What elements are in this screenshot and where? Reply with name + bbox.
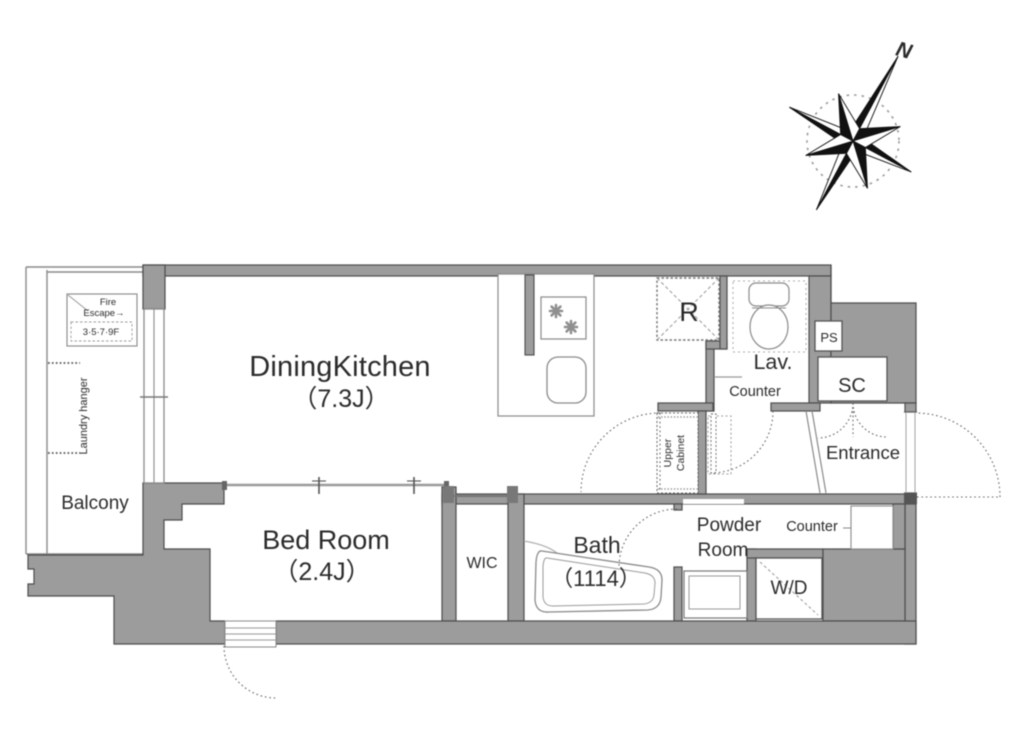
svg-text:Room: Room xyxy=(698,540,749,561)
svg-text:Counter: Counter xyxy=(729,384,781,400)
svg-text:Lav.: Lav. xyxy=(753,350,792,374)
svg-text:3·5·7·9F: 3·5·7·9F xyxy=(83,327,120,338)
svg-text:Entrance: Entrance xyxy=(826,442,900,463)
svg-text:Counter: Counter xyxy=(786,519,838,535)
svg-text:Balcony: Balcony xyxy=(61,493,129,514)
svg-text:SC: SC xyxy=(838,375,866,397)
svg-text:Bath: Bath xyxy=(573,532,620,558)
svg-text:DiningKitchen: DiningKitchen xyxy=(249,351,431,383)
svg-text:W/D: W/D xyxy=(771,578,808,599)
svg-text:Cabinet: Cabinet xyxy=(675,435,687,471)
svg-text:WIC: WIC xyxy=(466,555,497,572)
svg-text:PS: PS xyxy=(820,330,838,345)
svg-text:（2.4J）: （2.4J） xyxy=(273,558,370,586)
svg-text:（1114）: （1114） xyxy=(551,566,641,591)
svg-text:（7.3J）: （7.3J） xyxy=(292,385,389,413)
svg-text:N: N xyxy=(893,38,915,65)
svg-text:Upper: Upper xyxy=(662,438,674,467)
svg-text:R: R xyxy=(679,297,699,327)
svg-text:Bed Room: Bed Room xyxy=(262,525,390,555)
svg-text:Powder: Powder xyxy=(697,515,762,536)
svg-text:Fire: Fire xyxy=(100,297,116,308)
svg-text:Escape→: Escape→ xyxy=(83,308,124,319)
svg-text:Laundry hanger: Laundry hanger xyxy=(78,377,90,454)
